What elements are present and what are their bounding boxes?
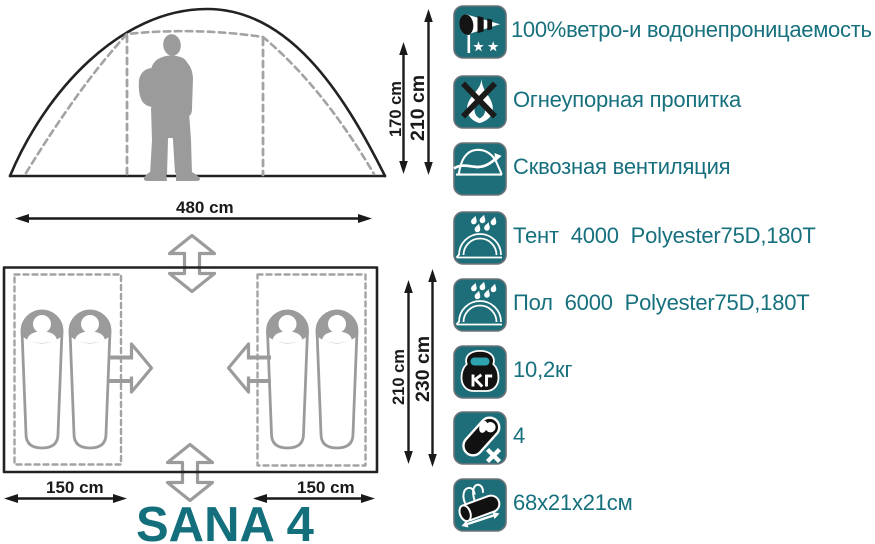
svg-text:230 cm: 230 cm [412, 336, 434, 402]
svg-text:150 cm: 150 cm [46, 478, 104, 497]
svg-text:210 cm: 210 cm [390, 349, 408, 405]
svg-text:210 cm: 210 cm [407, 75, 429, 141]
svg-text:150 cm: 150 cm [297, 478, 355, 497]
svg-text:SANA 4: SANA 4 [136, 498, 314, 544]
svg-text:170 cm: 170 cm [387, 81, 405, 137]
svg-text:480 cm: 480 cm [176, 198, 234, 217]
